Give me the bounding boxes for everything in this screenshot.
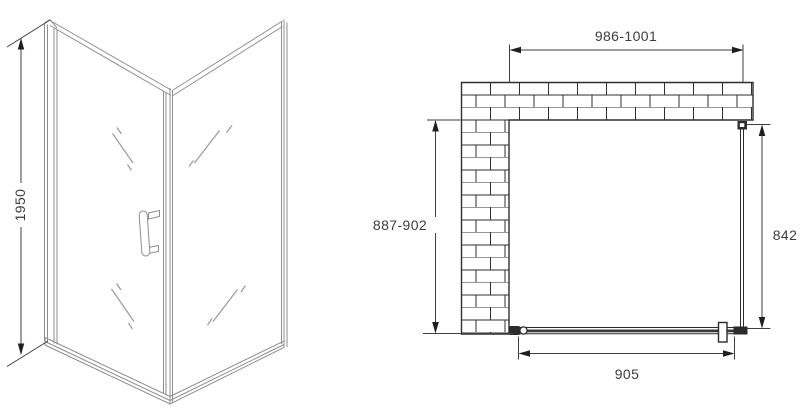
top-width-dimension	[510, 45, 744, 83]
arrow-up-icon	[432, 120, 439, 132]
perspective-view	[45, 20, 288, 405]
extension-line-top	[7, 20, 50, 47]
arrow-left-icon	[510, 47, 522, 54]
arrow-up-icon	[759, 125, 766, 137]
arrow-down-icon	[18, 344, 24, 356]
right-frame-post	[282, 20, 288, 348]
hinge-pin	[520, 327, 527, 334]
arrow-down-icon	[432, 322, 439, 334]
fixed-glass-dimension-label: 842	[767, 227, 800, 243]
arrow-right-icon	[732, 47, 744, 54]
bottom-sill-right	[170, 341, 284, 404]
side-depth-dimension-label: 887-902	[355, 217, 445, 233]
corner-closure-block	[734, 327, 748, 335]
fixed-glass-panel	[738, 121, 748, 327]
arrow-left-icon	[519, 350, 531, 357]
door-handle	[139, 211, 160, 257]
door-handle-plan	[719, 323, 728, 343]
left-frame-post	[45, 20, 58, 345]
top-rail-right	[173, 21, 283, 96]
arrow-down-icon	[759, 317, 766, 329]
glass-reflection-marks	[112, 126, 246, 330]
brick-wall	[462, 83, 754, 335]
height-dimension-label: 1950	[12, 183, 28, 227]
top-width-dimension-label: 986-1001	[576, 28, 676, 44]
shower-enclosure-drawing: 1950 986-1001 887-902 842 905	[0, 0, 800, 410]
center-corner-post	[164, 88, 173, 403]
drawing-canvas	[0, 0, 800, 410]
door-width-dimension	[519, 337, 735, 360]
top-rail-left	[50, 21, 171, 96]
arrow-right-icon	[723, 350, 735, 357]
extension-line-bottom	[7, 341, 48, 367]
bottom-sill-left	[45, 338, 170, 405]
door-panel	[509, 323, 748, 343]
door-width-dimension-label: 905	[597, 366, 657, 382]
plan-view	[462, 83, 754, 343]
